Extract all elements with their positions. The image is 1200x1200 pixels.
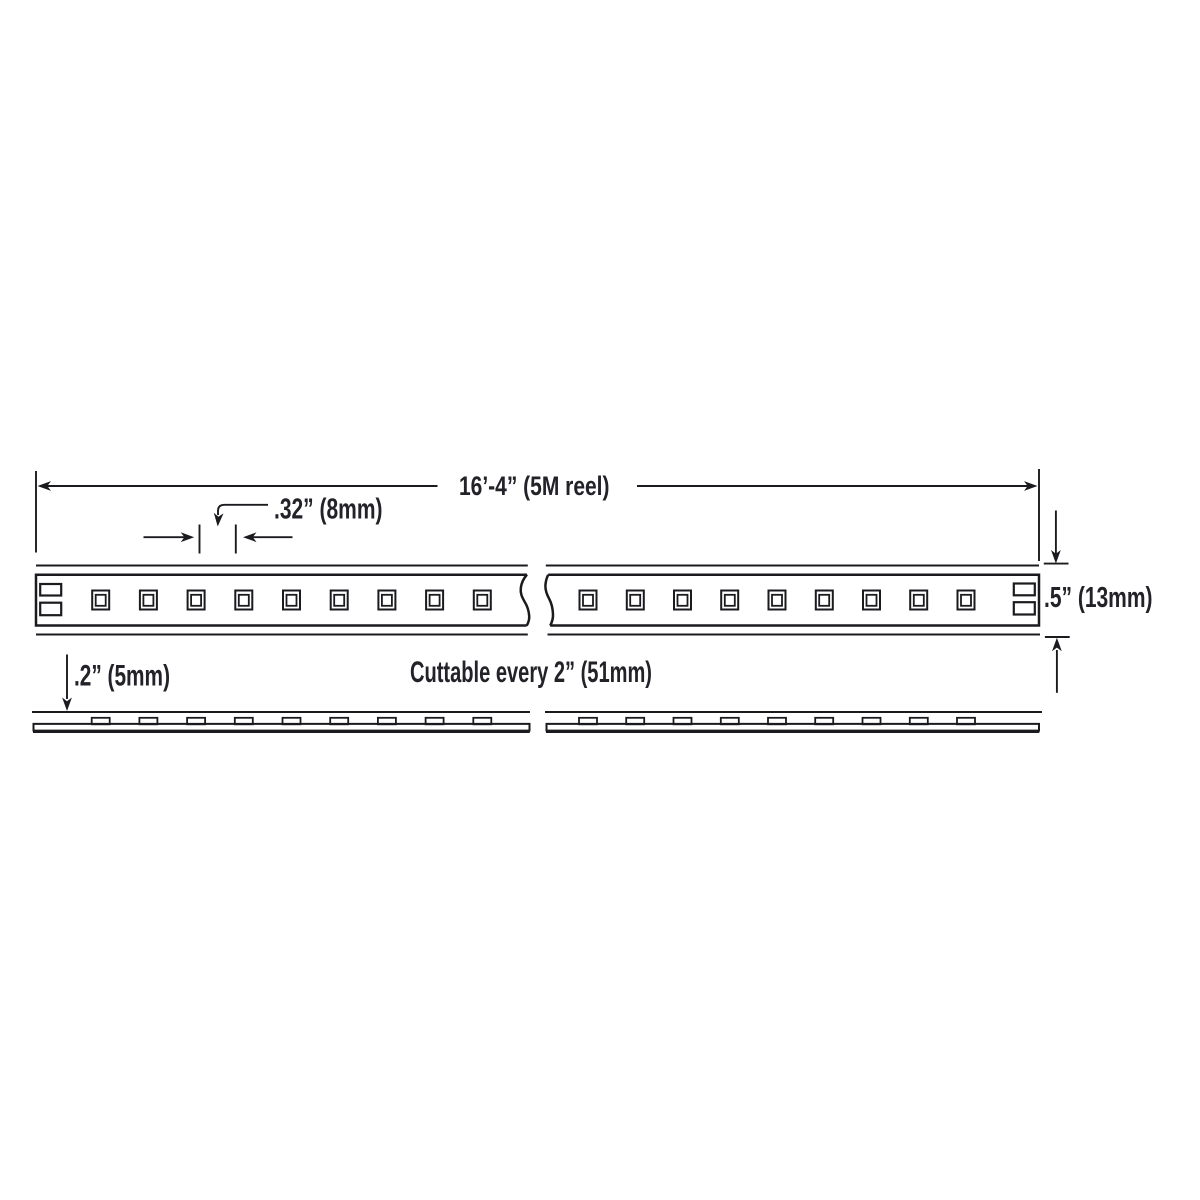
svg-text:16’-4” (5M reel): 16’-4” (5M reel) [459, 471, 610, 501]
svg-text:.32” (8mm): .32” (8mm) [274, 494, 383, 526]
svg-text:Cuttable every 2” (51mm): Cuttable every 2” (51mm) [410, 656, 652, 689]
svg-text:.2” (5mm): .2” (5mm) [74, 659, 170, 692]
svg-text:.5” (13mm): .5” (13mm) [1044, 582, 1153, 614]
